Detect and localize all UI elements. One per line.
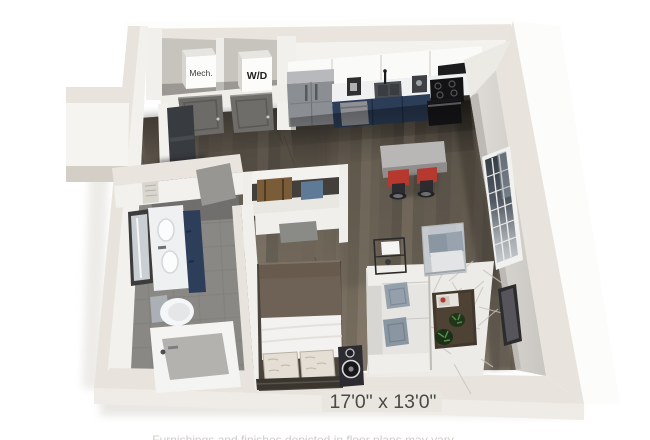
svg-text:W/D: W/D	[247, 70, 268, 82]
svg-text:Mech.: Mech.	[189, 68, 212, 78]
svg-text:17'0" x 13'0": 17'0" x 13'0"	[330, 391, 437, 413]
svg-text:Furnishings and finishes depic: Furnishings and finishes depicted in flo…	[152, 433, 454, 440]
